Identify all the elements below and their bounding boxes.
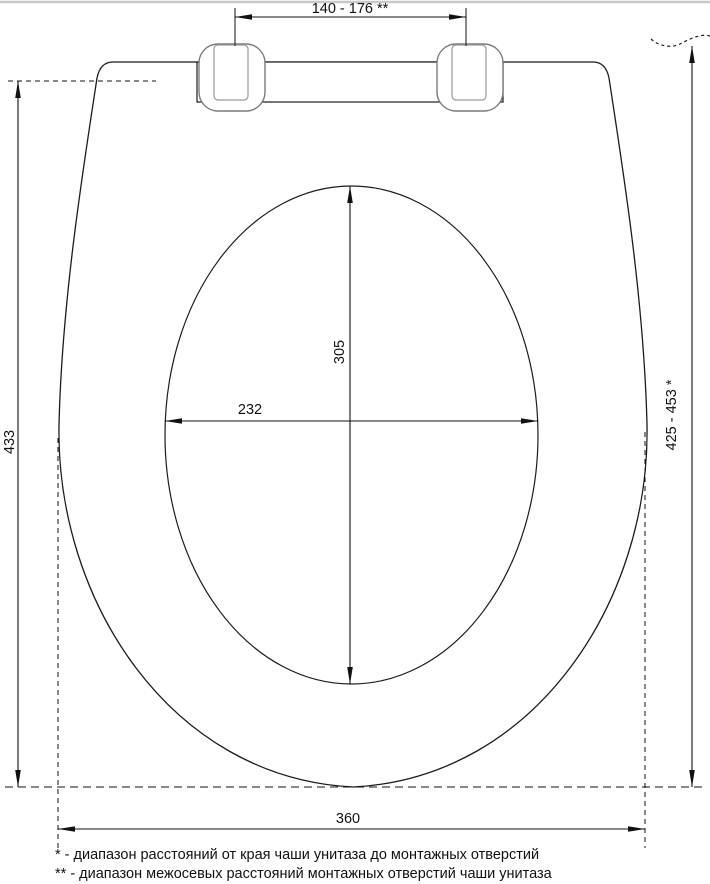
- technical-drawing-canvas: 140 - 176 ** 433 425 - 453 * 305 232: [0, 0, 710, 884]
- seat-dimension-drawing: 140 - 176 ** 433 425 - 453 * 305 232: [0, 0, 710, 884]
- label-opening-width: 232: [238, 402, 262, 418]
- label-mount-hole-range: 425 - 453 *: [664, 379, 680, 450]
- hinge-left-slot: [214, 45, 248, 100]
- label-seat-length: 433: [2, 430, 18, 454]
- footnote-single-asterisk: * - диапазон расстояний от края чаши уни…: [55, 847, 539, 863]
- label-opening-length: 305: [332, 340, 348, 364]
- dimension-mount-hole-range: 425 - 453 *: [651, 35, 710, 787]
- footnote-double-asterisk: ** - диапазон межосевых расстояний монта…: [55, 866, 553, 882]
- dimension-hinge-spacing: 140 - 176 **: [235, 1, 466, 46]
- hinge-right: [437, 44, 503, 111]
- label-seat-width: 360: [336, 811, 360, 827]
- hinge-right-slot: [452, 45, 486, 100]
- hinge-left: [199, 44, 265, 111]
- label-hinge-spacing: 140 - 176 **: [312, 1, 389, 17]
- bowl-edge-break-line: [651, 35, 710, 46]
- seat-outline: [59, 62, 647, 787]
